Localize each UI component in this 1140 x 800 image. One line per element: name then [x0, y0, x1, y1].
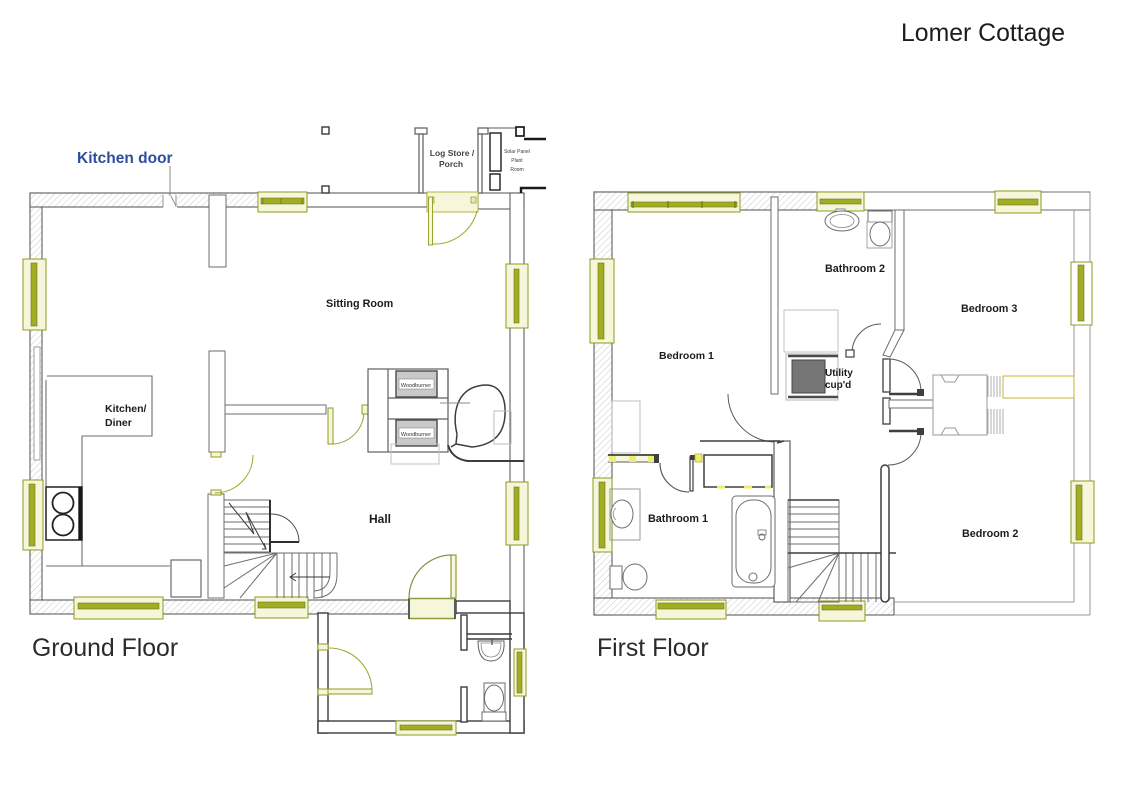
- svg-text:Woodburner: Woodburner: [401, 432, 431, 438]
- svg-text:Bedroom 3: Bedroom 3: [961, 303, 1017, 315]
- svg-text:Sitting Room: Sitting Room: [326, 298, 393, 310]
- svg-text:Plant: Plant: [511, 158, 523, 164]
- svg-text:Room: Room: [510, 167, 523, 173]
- svg-text:Solar Panel: Solar Panel: [504, 149, 530, 155]
- svg-text:Bedroom 1: Bedroom 1: [659, 350, 714, 362]
- svg-text:Utility: Utility: [825, 368, 853, 379]
- svg-text:Bathroom 2: Bathroom 2: [825, 263, 885, 275]
- svg-text:Diner: Diner: [105, 417, 132, 429]
- svg-text:Porch: Porch: [439, 159, 463, 169]
- svg-text:Kitchen door: Kitchen door: [77, 150, 173, 167]
- svg-text:Bedroom 2: Bedroom 2: [962, 528, 1018, 540]
- svg-text:cup'd: cup'd: [825, 380, 851, 391]
- svg-text:Bathroom 1: Bathroom 1: [648, 513, 708, 525]
- svg-text:Woodburner: Woodburner: [401, 383, 431, 389]
- svg-text:Ground Floor: Ground Floor: [32, 635, 178, 662]
- svg-text:Lomer Cottage: Lomer Cottage: [901, 20, 1065, 47]
- svg-text:Hall: Hall: [369, 512, 391, 526]
- svg-text:Log Store /: Log Store /: [430, 148, 475, 158]
- svg-text:Kitchen/: Kitchen/: [105, 403, 147, 415]
- svg-text:First Floor: First Floor: [597, 635, 709, 662]
